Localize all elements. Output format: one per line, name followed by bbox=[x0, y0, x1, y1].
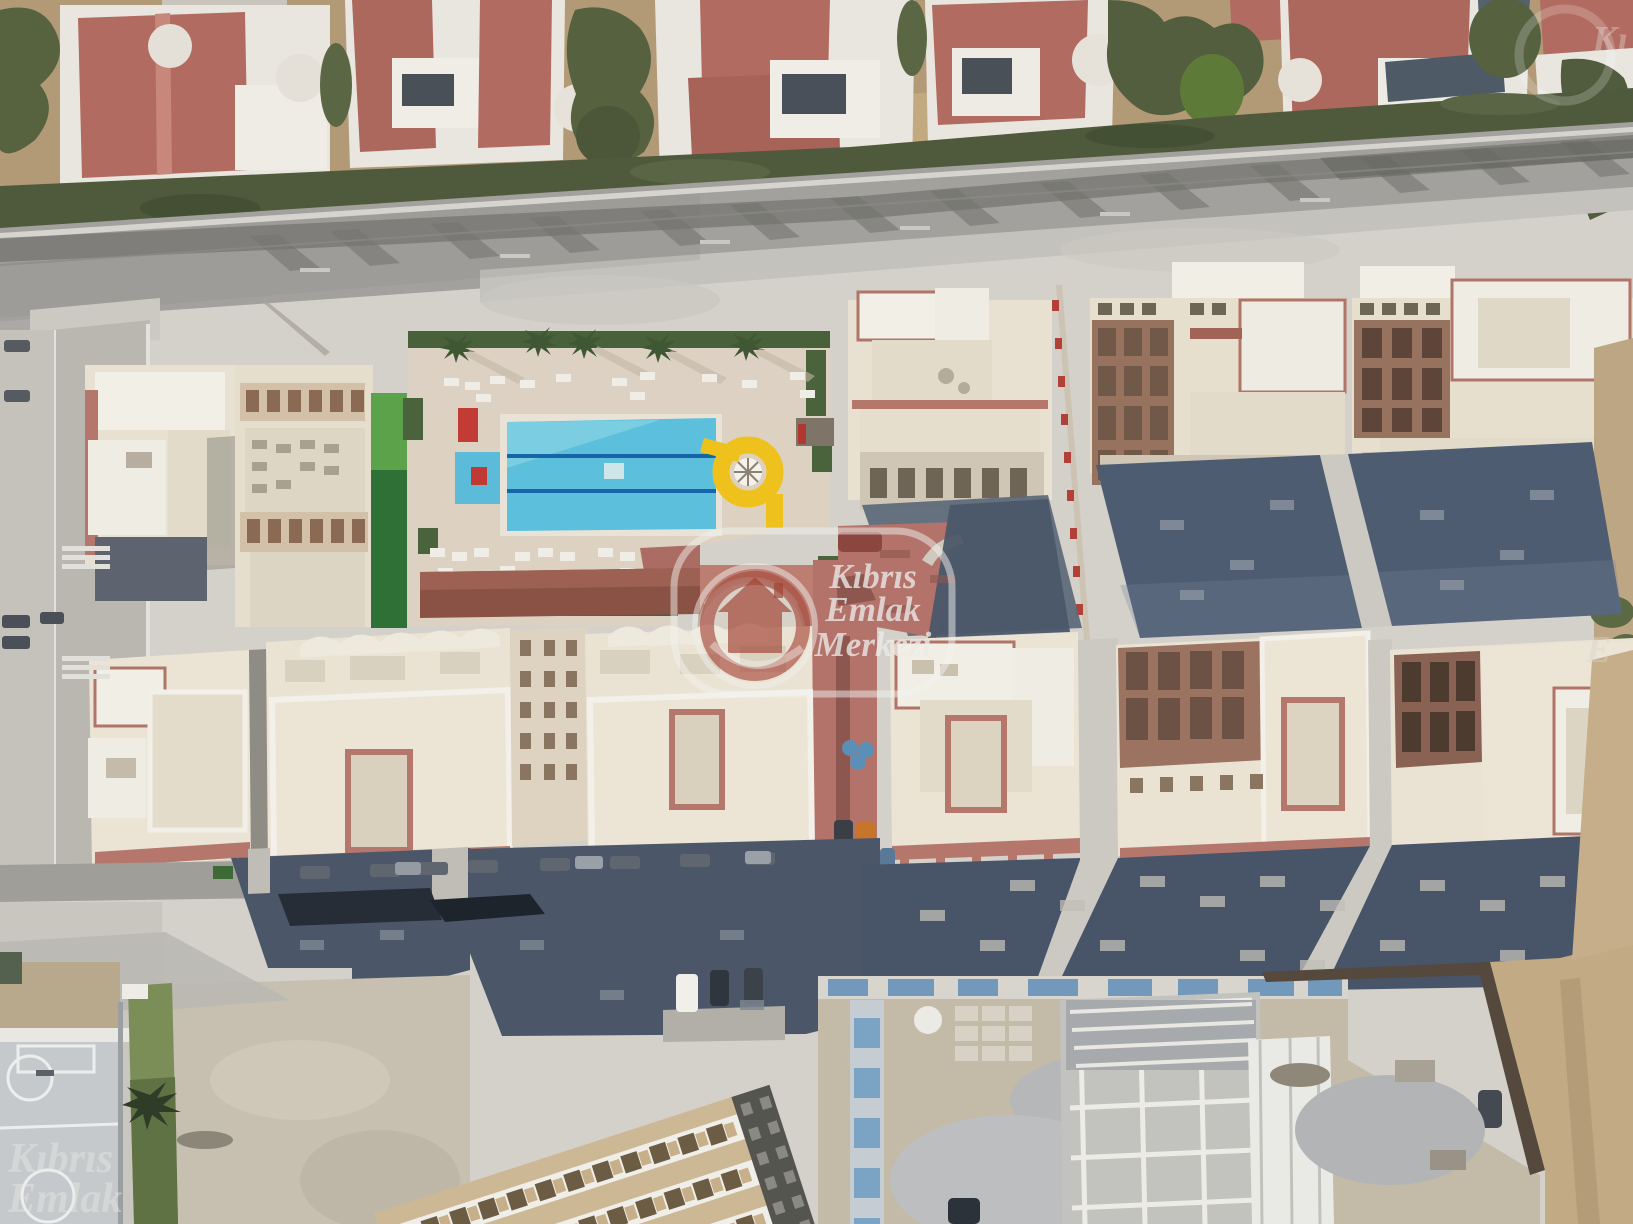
svg-text:Emlak: Emlak bbox=[7, 1176, 122, 1222]
svg-text:E: E bbox=[1585, 629, 1611, 671]
svg-text:Kı: Kı bbox=[1591, 19, 1628, 61]
svg-text:Merkezi: Merkezi bbox=[814, 625, 932, 664]
svg-text:Emlak: Emlak bbox=[824, 590, 921, 629]
